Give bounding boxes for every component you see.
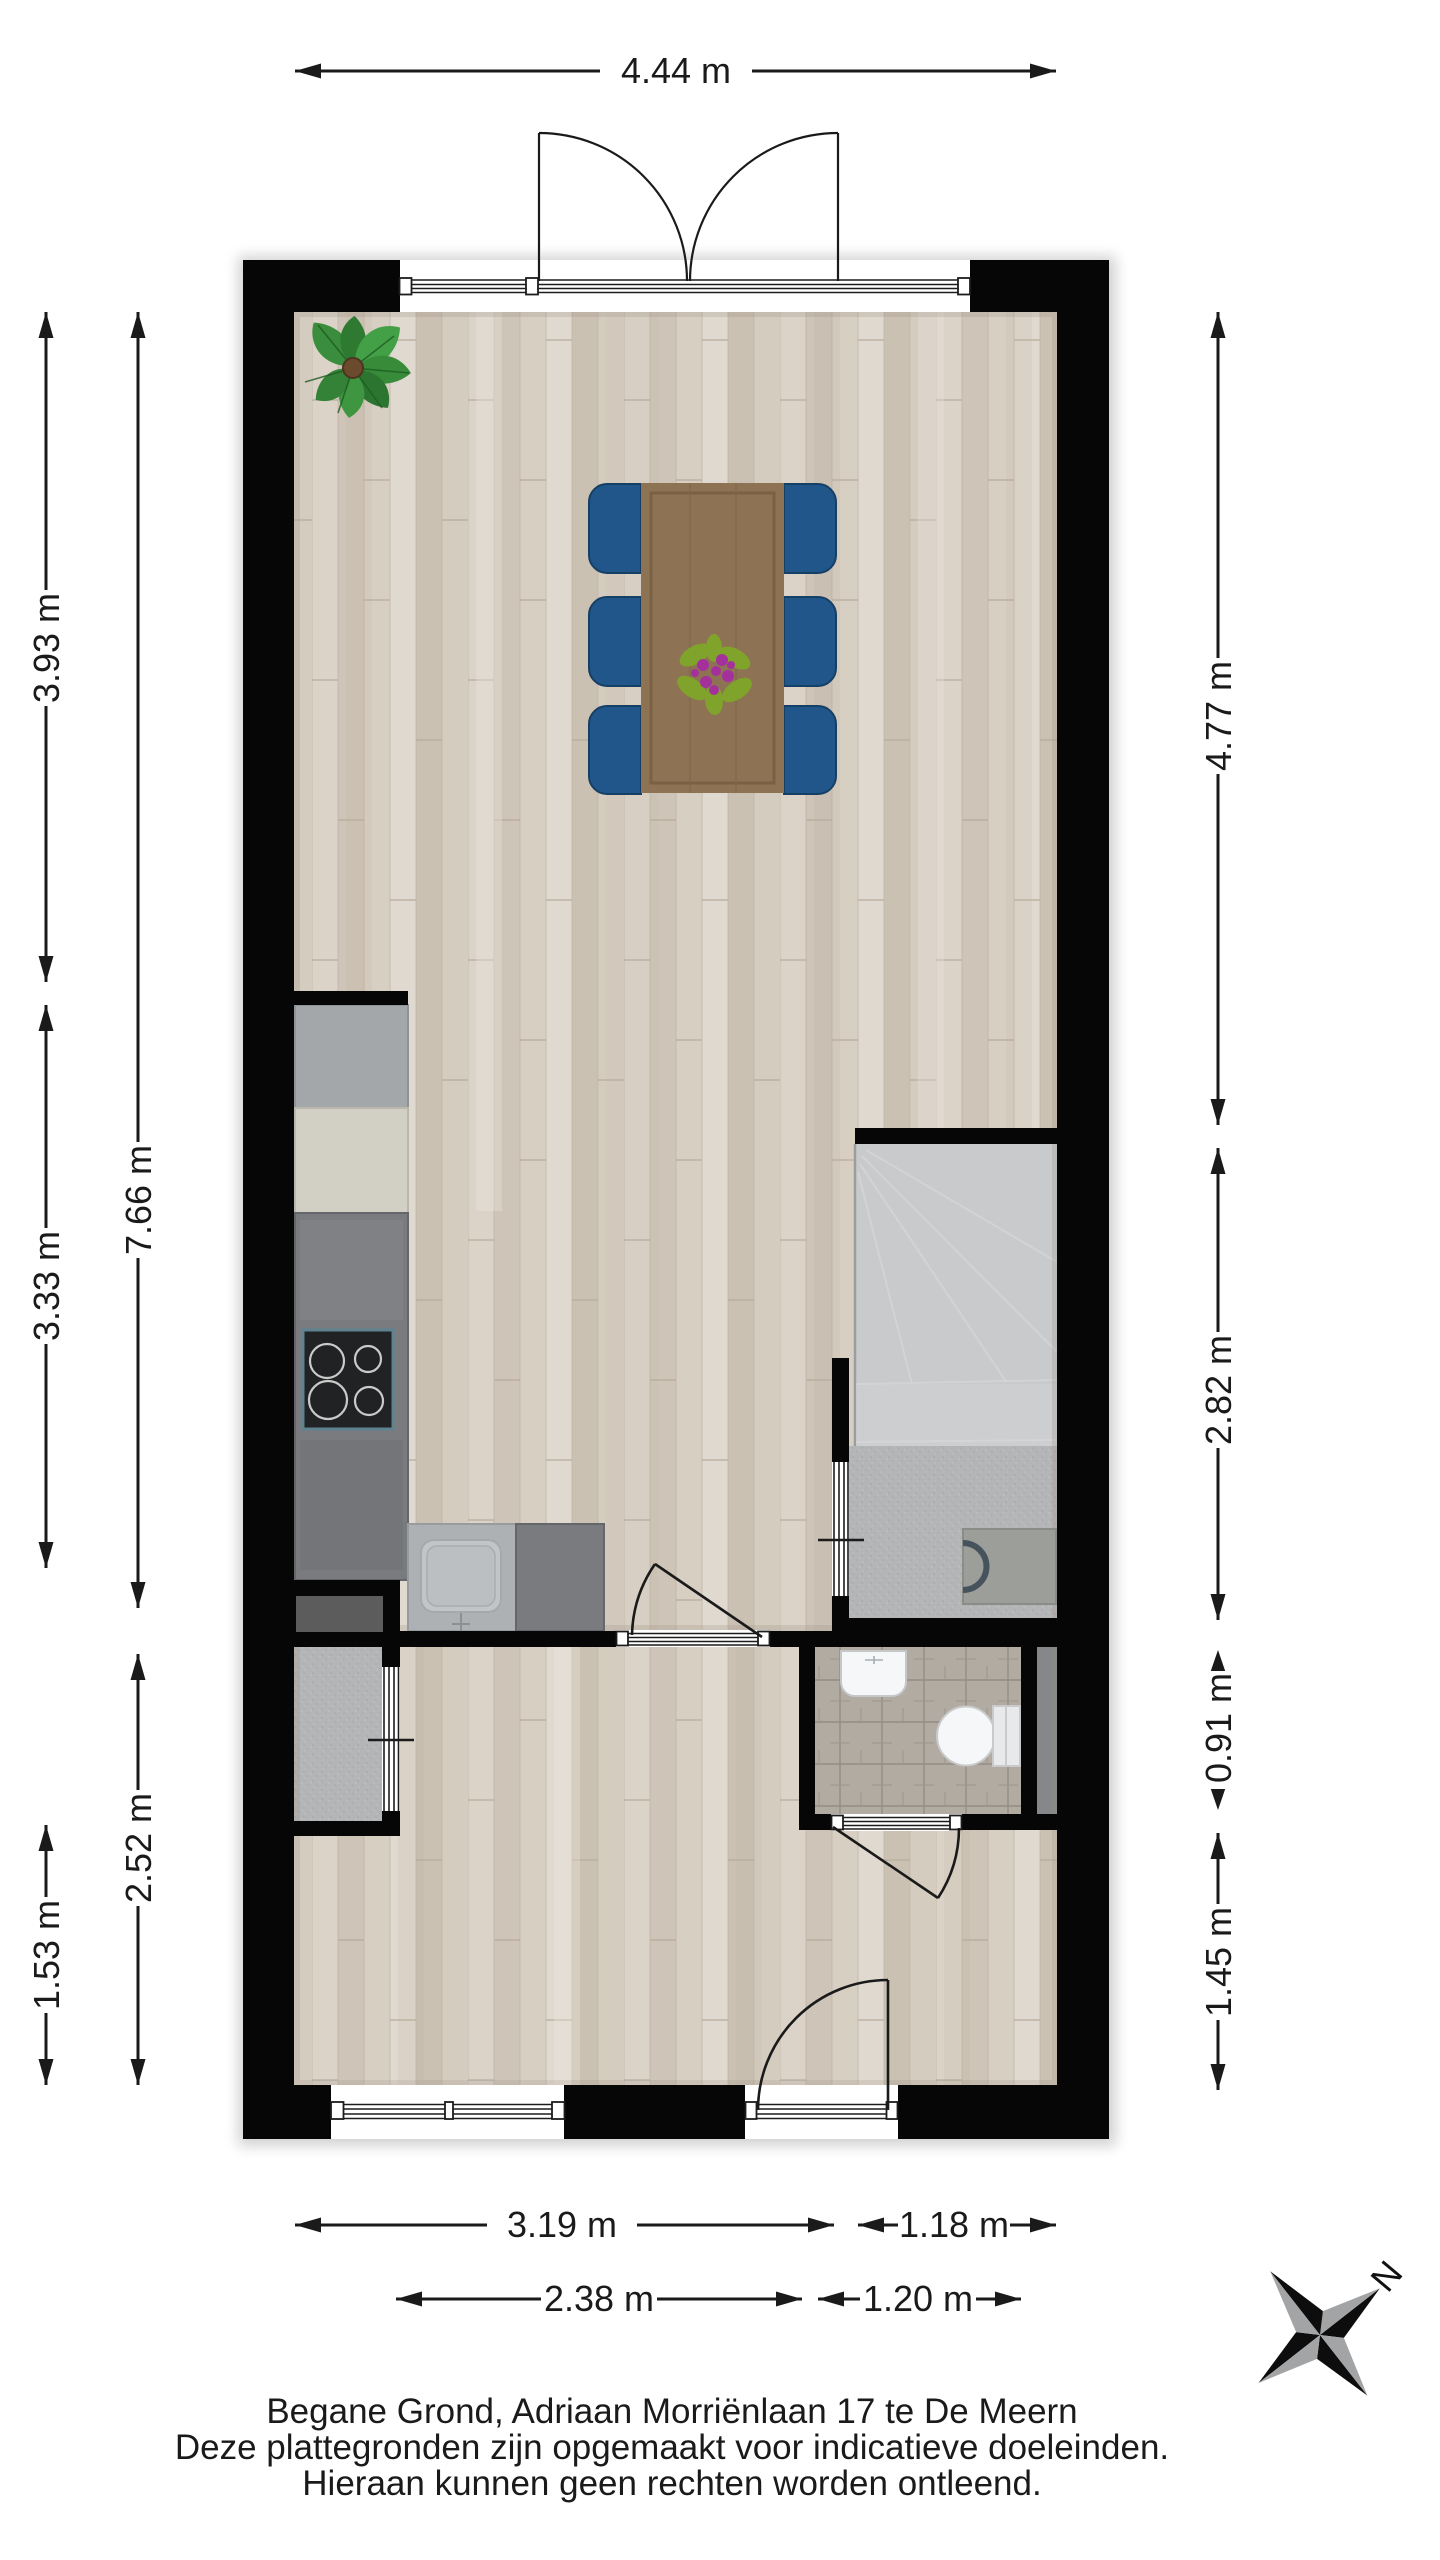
- svg-text:2.38 m: 2.38 m: [544, 2278, 654, 2319]
- svg-text:Hieraan kunnen geen rechten wo: Hieraan kunnen geen rechten worden ontle…: [302, 2464, 1041, 2503]
- svg-text:2.82 m: 2.82 m: [1198, 1335, 1239, 1445]
- svg-text:2.52 m: 2.52 m: [118, 1793, 159, 1903]
- svg-text:4.44 m: 4.44 m: [621, 50, 731, 91]
- svg-text:7.66 m: 7.66 m: [118, 1145, 159, 1255]
- svg-text:1.18 m: 1.18 m: [899, 2204, 1009, 2245]
- svg-text:4.77 m: 4.77 m: [1198, 661, 1239, 771]
- svg-text:1.45 m: 1.45 m: [1198, 1907, 1239, 2017]
- svg-text:Begane Grond, Adriaan Morriënl: Begane Grond, Adriaan Morriënlaan 17 te …: [266, 2392, 1077, 2431]
- svg-text:Deze plattegronden zijn opgema: Deze plattegronden zijn opgemaakt voor i…: [175, 2428, 1169, 2467]
- svg-text:3.93 m: 3.93 m: [26, 593, 67, 703]
- svg-text:3.33 m: 3.33 m: [26, 1231, 67, 1341]
- svg-text:1.53 m: 1.53 m: [26, 1900, 67, 2010]
- svg-text:1.20 m: 1.20 m: [863, 2278, 973, 2319]
- svg-text:3.19 m: 3.19 m: [507, 2204, 617, 2245]
- svg-text:0.91 m: 0.91 m: [1198, 1673, 1239, 1783]
